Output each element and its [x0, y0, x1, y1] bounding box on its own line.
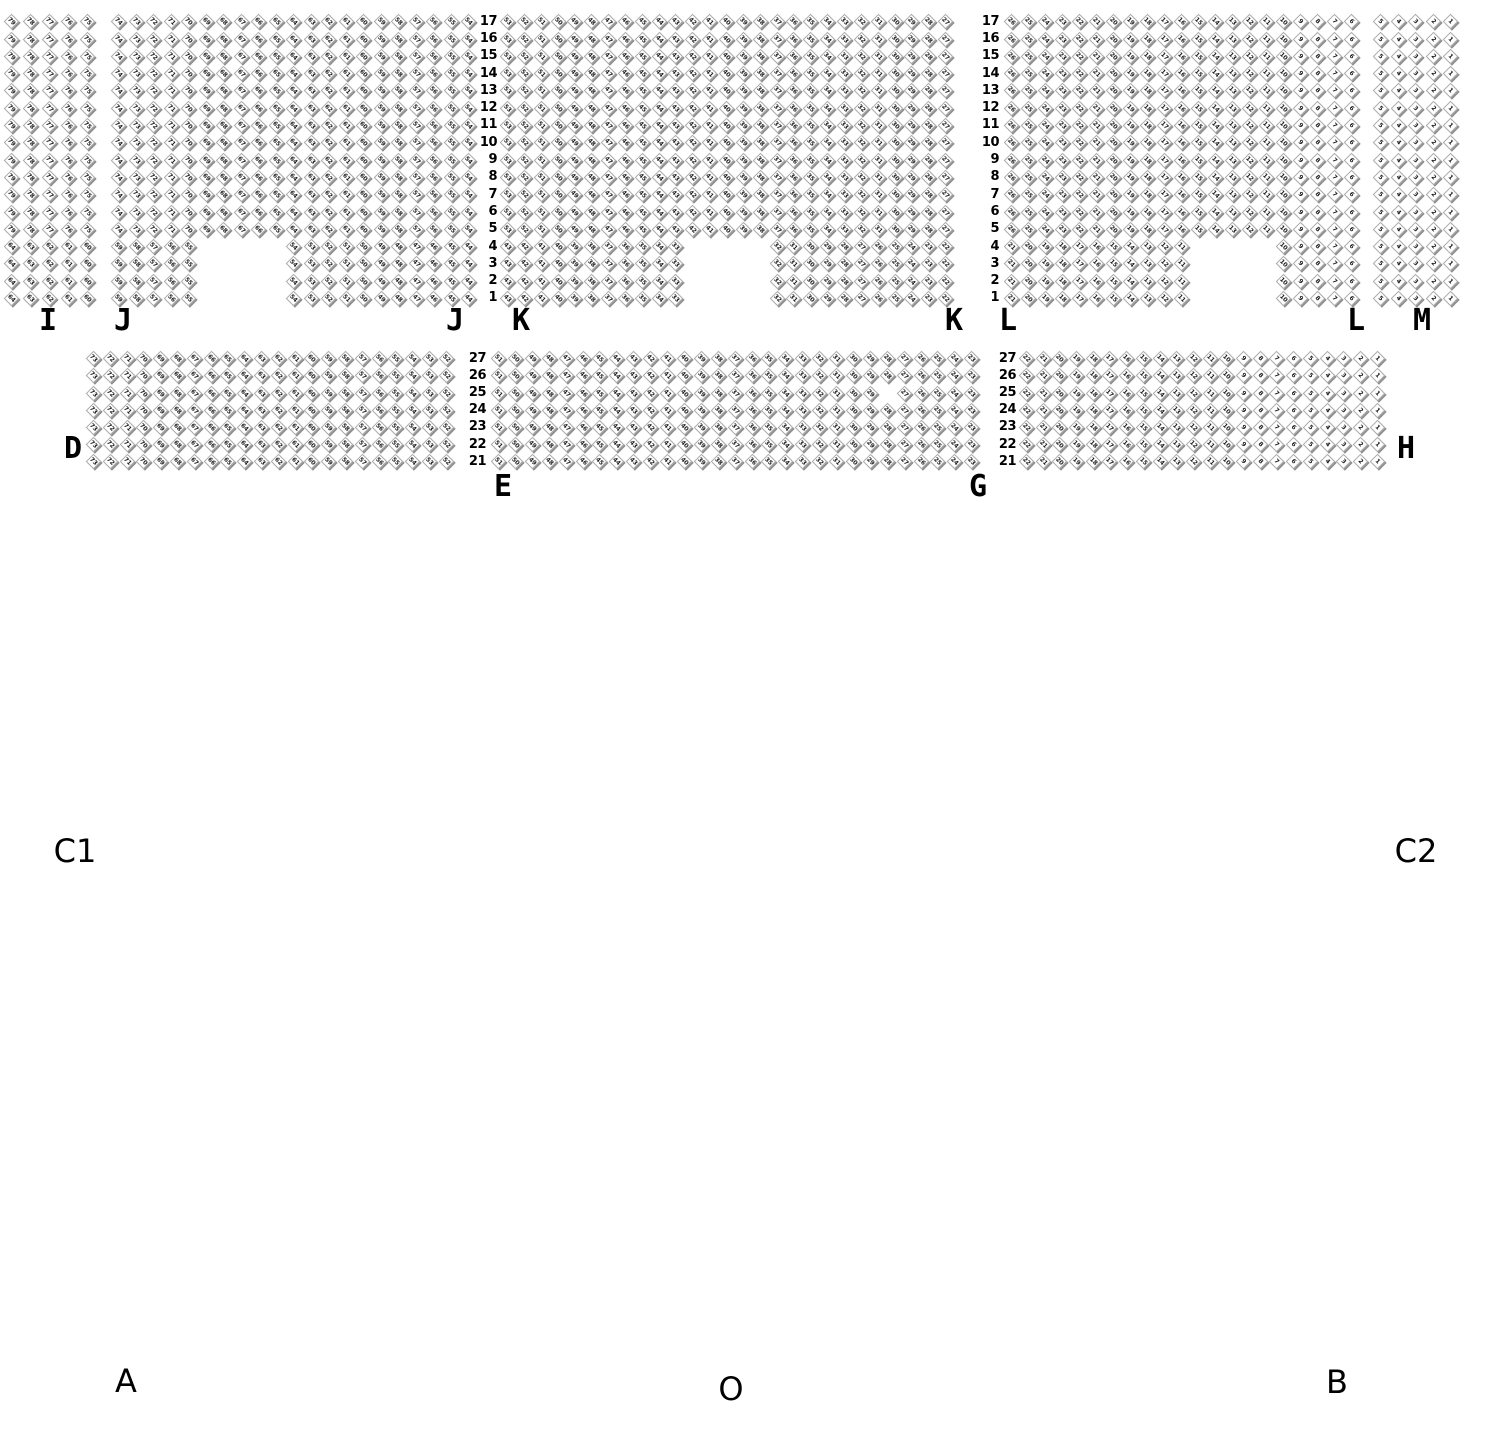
- seat-K-12-47[interactable]: 47: [601, 100, 617, 116]
- seat-J-14-56[interactable]: 56: [426, 66, 442, 82]
- seat-D-22-65[interactable]: 65: [220, 437, 236, 453]
- seat-L-3-10[interactable]: 10: [1276, 256, 1292, 272]
- seat-I-8-76[interactable]: 76: [61, 170, 77, 186]
- seat-L-15-23[interactable]: 23: [1055, 49, 1071, 65]
- seat-L-8-22[interactable]: 22: [1072, 170, 1088, 186]
- seat-K-17-41[interactable]: 41: [702, 14, 718, 30]
- seat-L-13-11[interactable]: 11: [1259, 83, 1275, 99]
- seat-I-7-78[interactable]: 78: [23, 187, 39, 203]
- seat-E-23-51[interactable]: 51: [491, 420, 507, 436]
- seat-K-14-49[interactable]: 49: [567, 66, 583, 82]
- seat-E-26-26[interactable]: 26: [913, 368, 929, 384]
- seat-K-2-37[interactable]: 37: [601, 273, 617, 289]
- seat-L-5-15[interactable]: 15: [1191, 222, 1207, 238]
- seat-J-11-74[interactable]: 74: [111, 118, 127, 134]
- seat-K-6-46[interactable]: 46: [618, 204, 634, 220]
- seat-K-11-50[interactable]: 50: [550, 118, 566, 134]
- seat-E-22-30[interactable]: 30: [846, 437, 862, 453]
- seat-J-1-48[interactable]: 48: [391, 291, 407, 307]
- seat-I-6-79[interactable]: 79: [4, 204, 20, 220]
- seat-L-7-11[interactable]: 11: [1259, 187, 1275, 203]
- seat-K-13-52[interactable]: 52: [517, 83, 533, 99]
- seat-L-15-16[interactable]: 16: [1174, 49, 1190, 65]
- seat-L-14-17[interactable]: 17: [1157, 66, 1173, 82]
- seat-L-7-12[interactable]: 12: [1242, 187, 1258, 203]
- seat-D-21-61[interactable]: 61: [287, 454, 303, 470]
- seat-L-9-8[interactable]: 8: [1310, 152, 1326, 168]
- seat-D-21-64[interactable]: 64: [237, 454, 253, 470]
- seat-E-26-30[interactable]: 30: [846, 368, 862, 384]
- seat-K-6-52[interactable]: 52: [517, 204, 533, 220]
- seat-E-25-40[interactable]: 40: [677, 385, 693, 401]
- seat-J-3-51[interactable]: 51: [339, 256, 355, 272]
- seat-E-22-48[interactable]: 48: [541, 437, 557, 453]
- seat-E-23-25[interactable]: 25: [930, 420, 946, 436]
- seat-E-22-35[interactable]: 35: [761, 437, 777, 453]
- seat-M-5-2[interactable]: 2: [1426, 222, 1442, 238]
- seat-D-22-59[interactable]: 59: [321, 437, 337, 453]
- seat-D-26-69[interactable]: 69: [153, 368, 169, 384]
- seat-J-14-63[interactable]: 63: [304, 66, 320, 82]
- seat-E-22-29[interactable]: 29: [863, 437, 879, 453]
- seat-D-25-70[interactable]: 70: [136, 385, 152, 401]
- seat-K-8-41[interactable]: 41: [702, 170, 718, 186]
- seat-L-2-12[interactable]: 12: [1157, 273, 1173, 289]
- seat-J-6-63[interactable]: 63: [304, 204, 320, 220]
- seat-E-24-31[interactable]: 31: [829, 402, 845, 418]
- seat-G-24-7[interactable]: 7: [1269, 402, 1285, 418]
- seat-I-12-76[interactable]: 76: [61, 100, 77, 116]
- seat-D-22-71[interactable]: 71: [119, 437, 135, 453]
- seat-L-17-11[interactable]: 11: [1259, 14, 1275, 30]
- seat-L-4-18[interactable]: 18: [1055, 239, 1071, 255]
- seat-D-23-66[interactable]: 66: [203, 420, 219, 436]
- seat-J-2-58[interactable]: 58: [129, 273, 145, 289]
- seat-J-11-73[interactable]: 73: [129, 118, 145, 134]
- seat-D-23-70[interactable]: 70: [136, 420, 152, 436]
- seat-K-6-33[interactable]: 33: [837, 204, 853, 220]
- seat-J-16-62[interactable]: 62: [321, 31, 337, 47]
- seat-L-4-14[interactable]: 14: [1123, 239, 1139, 255]
- seat-J-6-68[interactable]: 68: [216, 204, 232, 220]
- seat-E-26-42[interactable]: 42: [643, 368, 659, 384]
- seat-J-12-66[interactable]: 66: [251, 100, 267, 116]
- seat-K-11-30[interactable]: 30: [887, 118, 903, 134]
- seat-L-3-14[interactable]: 14: [1123, 256, 1139, 272]
- seat-L-8-9[interactable]: 9: [1293, 170, 1309, 186]
- seat-K-13-28[interactable]: 28: [921, 83, 937, 99]
- seat-E-21-24[interactable]: 24: [947, 454, 963, 470]
- seat-E-23-29[interactable]: 29: [863, 420, 879, 436]
- seat-K-11-28[interactable]: 28: [921, 118, 937, 134]
- seat-K-3-43[interactable]: 43: [500, 256, 516, 272]
- seat-E-22-45[interactable]: 45: [592, 437, 608, 453]
- seat-K-6-27[interactable]: 27: [938, 204, 954, 220]
- seat-D-24-70[interactable]: 70: [136, 402, 152, 418]
- seat-J-1-50[interactable]: 50: [356, 291, 372, 307]
- seat-M-6-1[interactable]: 1: [1443, 204, 1459, 220]
- seat-J-11-57[interactable]: 57: [409, 118, 425, 134]
- seat-L-15-26[interactable]: 26: [1004, 49, 1020, 65]
- seat-K-15-28[interactable]: 28: [921, 49, 937, 65]
- seat-J-16-73[interactable]: 73: [129, 31, 145, 47]
- seat-E-24-48[interactable]: 48: [541, 402, 557, 418]
- seat-G-23-14[interactable]: 14: [1152, 420, 1168, 436]
- seat-K-17-45[interactable]: 45: [634, 14, 650, 30]
- seat-E-26-50[interactable]: 50: [508, 368, 524, 384]
- seat-G-27-2[interactable]: 2: [1353, 351, 1369, 367]
- seat-G-26-3[interactable]: 3: [1336, 368, 1352, 384]
- seat-G-27-15[interactable]: 15: [1136, 351, 1152, 367]
- seat-G-25-19[interactable]: 19: [1069, 385, 1085, 401]
- seat-L-6-25[interactable]: 25: [1021, 204, 1037, 220]
- seat-E-21-30[interactable]: 30: [846, 454, 862, 470]
- seat-M-15-4[interactable]: 4: [1391, 49, 1407, 65]
- seat-J-14-70[interactable]: 70: [181, 66, 197, 82]
- seat-K-17-27[interactable]: 27: [938, 14, 954, 30]
- seat-L-9-17[interactable]: 17: [1157, 152, 1173, 168]
- seat-J-8-72[interactable]: 72: [146, 170, 162, 186]
- seat-L-17-21[interactable]: 21: [1089, 14, 1105, 30]
- seat-L-10-26[interactable]: 26: [1004, 135, 1020, 151]
- seat-K-15-41[interactable]: 41: [702, 49, 718, 65]
- seat-M-11-5[interactable]: 5: [1373, 118, 1389, 134]
- seat-I-3-61[interactable]: 61: [61, 256, 77, 272]
- seat-L-14-16[interactable]: 16: [1174, 66, 1190, 82]
- seat-J-16-56[interactable]: 56: [426, 31, 442, 47]
- seat-J-7-68[interactable]: 68: [216, 187, 232, 203]
- seat-K-1-29[interactable]: 29: [820, 291, 836, 307]
- seat-L-8-16[interactable]: 16: [1174, 170, 1190, 186]
- seat-I-5-79[interactable]: 79: [4, 222, 20, 238]
- seat-L-3-15[interactable]: 15: [1106, 256, 1122, 272]
- seat-L-5-25[interactable]: 25: [1021, 222, 1037, 238]
- seat-K-4-24[interactable]: 24: [904, 239, 920, 255]
- seat-G-24-11[interactable]: 11: [1202, 402, 1218, 418]
- seat-L-5-11[interactable]: 11: [1259, 222, 1275, 238]
- seat-J-15-62[interactable]: 62: [321, 49, 337, 65]
- seat-K-11-32[interactable]: 32: [854, 118, 870, 134]
- seat-L-8-10[interactable]: 10: [1276, 170, 1292, 186]
- seat-K-3-22[interactable]: 22: [938, 256, 954, 272]
- seat-L-9-15[interactable]: 15: [1191, 152, 1207, 168]
- seat-I-7-77[interactable]: 77: [42, 187, 58, 203]
- seat-M-15-2[interactable]: 2: [1426, 49, 1442, 65]
- seat-K-7-43[interactable]: 43: [668, 187, 684, 203]
- seat-K-9-51[interactable]: 51: [533, 152, 549, 168]
- seat-E-21-35[interactable]: 35: [761, 454, 777, 470]
- seat-K-3-33[interactable]: 33: [668, 256, 684, 272]
- seat-G-25-12[interactable]: 12: [1186, 385, 1202, 401]
- seat-J-3-55[interactable]: 55: [181, 256, 197, 272]
- seat-E-23-40[interactable]: 40: [677, 420, 693, 436]
- seat-E-25-25[interactable]: 25: [930, 385, 946, 401]
- seat-K-9-34[interactable]: 34: [820, 152, 836, 168]
- seat-G-22-17[interactable]: 17: [1102, 437, 1118, 453]
- seat-K-5-38[interactable]: 38: [752, 222, 768, 238]
- seat-K-6-48[interactable]: 48: [584, 204, 600, 220]
- seat-G-27-22[interactable]: 22: [1019, 351, 1035, 367]
- seat-K-9-47[interactable]: 47: [601, 152, 617, 168]
- seat-J-13-64[interactable]: 64: [286, 83, 302, 99]
- seat-K-8-34[interactable]: 34: [820, 170, 836, 186]
- seat-E-21-32[interactable]: 32: [812, 454, 828, 470]
- seat-K-1-31[interactable]: 31: [786, 291, 802, 307]
- seat-I-11-79[interactable]: 79: [4, 118, 20, 134]
- seat-D-21-55[interactable]: 55: [388, 454, 404, 470]
- seat-G-23-1[interactable]: 1: [1369, 420, 1385, 436]
- seat-K-9-30[interactable]: 30: [887, 152, 903, 168]
- seat-L-10-11[interactable]: 11: [1259, 135, 1275, 151]
- seat-M-13-1[interactable]: 1: [1443, 83, 1459, 99]
- seat-D-26-62[interactable]: 62: [270, 368, 286, 384]
- seat-K-16-27[interactable]: 27: [938, 31, 954, 47]
- seat-G-21-11[interactable]: 11: [1202, 454, 1218, 470]
- seat-K-14-34[interactable]: 34: [820, 66, 836, 82]
- seat-I-2-60[interactable]: 60: [80, 273, 96, 289]
- seat-J-15-63[interactable]: 63: [304, 49, 320, 65]
- seat-E-26-24[interactable]: 24: [947, 368, 963, 384]
- seat-K-12-35[interactable]: 35: [803, 100, 819, 116]
- seat-L-9-6[interactable]: 6: [1344, 152, 1360, 168]
- seat-K-4-43[interactable]: 43: [500, 239, 516, 255]
- seat-K-10-31[interactable]: 31: [870, 135, 886, 151]
- seat-K-6-39[interactable]: 39: [736, 204, 752, 220]
- seat-L-14-9[interactable]: 9: [1293, 66, 1309, 82]
- seat-J-12-69[interactable]: 69: [199, 100, 215, 116]
- seat-G-25-18[interactable]: 18: [1085, 385, 1101, 401]
- seat-K-6-30[interactable]: 30: [887, 204, 903, 220]
- seat-M-7-1[interactable]: 1: [1443, 187, 1459, 203]
- seat-J-14-72[interactable]: 72: [146, 66, 162, 82]
- seat-J-2-50[interactable]: 50: [356, 273, 372, 289]
- seat-L-6-9[interactable]: 9: [1293, 204, 1309, 220]
- seat-L-6-15[interactable]: 15: [1191, 204, 1207, 220]
- seat-G-23-22[interactable]: 22: [1019, 420, 1035, 436]
- seat-E-27-31[interactable]: 31: [829, 351, 845, 367]
- seat-J-7-69[interactable]: 69: [199, 187, 215, 203]
- seat-E-25-39[interactable]: 39: [694, 385, 710, 401]
- seat-K-14-44[interactable]: 44: [651, 66, 667, 82]
- seat-J-13-62[interactable]: 62: [321, 83, 337, 99]
- seat-J-11-70[interactable]: 70: [181, 118, 197, 134]
- seat-E-22-32[interactable]: 32: [812, 437, 828, 453]
- seat-K-2-32[interactable]: 32: [769, 273, 785, 289]
- seat-K-14-45[interactable]: 45: [634, 66, 650, 82]
- seat-E-22-39[interactable]: 39: [694, 437, 710, 453]
- seat-L-6-14[interactable]: 14: [1208, 204, 1224, 220]
- seat-J-5-68[interactable]: 68: [216, 222, 232, 238]
- seat-G-24-8[interactable]: 8: [1252, 402, 1268, 418]
- seat-K-15-52[interactable]: 52: [517, 49, 533, 65]
- seat-J-12-61[interactable]: 61: [339, 100, 355, 116]
- seat-L-13-16[interactable]: 16: [1174, 83, 1190, 99]
- seat-J-8-73[interactable]: 73: [129, 170, 145, 186]
- seat-J-2-49[interactable]: 49: [374, 273, 390, 289]
- seat-K-9-42[interactable]: 42: [685, 152, 701, 168]
- seat-J-4-52[interactable]: 52: [321, 239, 337, 255]
- seat-J-11-61[interactable]: 61: [339, 118, 355, 134]
- seat-K-13-33[interactable]: 33: [837, 83, 853, 99]
- seat-K-8-50[interactable]: 50: [550, 170, 566, 186]
- seat-L-1-18[interactable]: 18: [1055, 291, 1071, 307]
- seat-L-15-15[interactable]: 15: [1191, 49, 1207, 65]
- seat-D-27-67[interactable]: 67: [186, 351, 202, 367]
- seat-E-23-26[interactable]: 26: [913, 420, 929, 436]
- seat-E-25-24[interactable]: 24: [947, 385, 963, 401]
- seat-I-10-75[interactable]: 75: [80, 135, 96, 151]
- seat-J-1-46[interactable]: 46: [426, 291, 442, 307]
- seat-I-12-78[interactable]: 78: [23, 100, 39, 116]
- seat-K-12-42[interactable]: 42: [685, 100, 701, 116]
- seat-J-16-66[interactable]: 66: [251, 31, 267, 47]
- seat-G-22-15[interactable]: 15: [1136, 437, 1152, 453]
- seat-K-7-29[interactable]: 29: [904, 187, 920, 203]
- seat-E-27-30[interactable]: 30: [846, 351, 862, 367]
- seat-K-5-41[interactable]: 41: [702, 222, 718, 238]
- seat-L-5-13[interactable]: 13: [1225, 222, 1241, 238]
- seat-K-8-40[interactable]: 40: [719, 170, 735, 186]
- seat-K-10-46[interactable]: 46: [618, 135, 634, 151]
- seat-J-15-70[interactable]: 70: [181, 49, 197, 65]
- seat-M-9-1[interactable]: 1: [1443, 152, 1459, 168]
- seat-E-27-50[interactable]: 50: [508, 351, 524, 367]
- seat-K-15-48[interactable]: 48: [584, 49, 600, 65]
- seat-D-27-56[interactable]: 56: [371, 351, 387, 367]
- seat-D-22-57[interactable]: 57: [354, 437, 370, 453]
- seat-E-23-48[interactable]: 48: [541, 420, 557, 436]
- seat-G-21-3[interactable]: 3: [1336, 454, 1352, 470]
- seat-J-17-58[interactable]: 58: [391, 14, 407, 30]
- seat-G-26-20[interactable]: 20: [1052, 368, 1068, 384]
- seat-M-16-5[interactable]: 5: [1373, 31, 1389, 47]
- seat-J-16-63[interactable]: 63: [304, 31, 320, 47]
- seat-L-7-22[interactable]: 22: [1072, 187, 1088, 203]
- seat-M-3-5[interactable]: 5: [1373, 256, 1389, 272]
- seat-L-14-11[interactable]: 11: [1259, 66, 1275, 82]
- seat-K-7-40[interactable]: 40: [719, 187, 735, 203]
- seat-E-27-47[interactable]: 47: [558, 351, 574, 367]
- seat-K-15-42[interactable]: 42: [685, 49, 701, 65]
- seat-K-5-39[interactable]: 39: [736, 222, 752, 238]
- seat-G-23-21[interactable]: 21: [1035, 420, 1051, 436]
- seat-K-12-29[interactable]: 29: [904, 100, 920, 116]
- seat-J-12-73[interactable]: 73: [129, 100, 145, 116]
- seat-K-10-47[interactable]: 47: [601, 135, 617, 151]
- seat-D-25-73[interactable]: 73: [86, 385, 102, 401]
- seat-K-13-29[interactable]: 29: [904, 83, 920, 99]
- seat-J-6-62[interactable]: 62: [321, 204, 337, 220]
- seat-L-3-7[interactable]: 7: [1327, 256, 1343, 272]
- seat-G-27-14[interactable]: 14: [1152, 351, 1168, 367]
- seat-L-9-21[interactable]: 21: [1089, 152, 1105, 168]
- seat-G-22-3[interactable]: 3: [1336, 437, 1352, 453]
- seat-K-1-36[interactable]: 36: [618, 291, 634, 307]
- seat-G-26-6[interactable]: 6: [1286, 368, 1302, 384]
- seat-K-5-30[interactable]: 30: [887, 222, 903, 238]
- seat-K-8-52[interactable]: 52: [517, 170, 533, 186]
- seat-E-23-39[interactable]: 39: [694, 420, 710, 436]
- seat-E-24-35[interactable]: 35: [761, 402, 777, 418]
- seat-K-10-28[interactable]: 28: [921, 135, 937, 151]
- seat-D-23-64[interactable]: 64: [237, 420, 253, 436]
- seat-K-15-36[interactable]: 36: [786, 49, 802, 65]
- seat-K-13-39[interactable]: 39: [736, 83, 752, 99]
- seat-J-9-64[interactable]: 64: [286, 152, 302, 168]
- seat-G-27-3[interactable]: 3: [1336, 351, 1352, 367]
- seat-L-6-20[interactable]: 20: [1106, 204, 1122, 220]
- seat-K-11-27[interactable]: 27: [938, 118, 954, 134]
- seat-J-10-67[interactable]: 67: [234, 135, 250, 151]
- seat-J-4-58[interactable]: 58: [129, 239, 145, 255]
- seat-K-6-36[interactable]: 36: [786, 204, 802, 220]
- seat-J-15-73[interactable]: 73: [129, 49, 145, 65]
- seat-K-8-53[interactable]: 53: [500, 170, 516, 186]
- seat-J-14-68[interactable]: 68: [216, 66, 232, 82]
- seat-E-21-27[interactable]: 27: [896, 454, 912, 470]
- seat-L-16-7[interactable]: 7: [1327, 31, 1343, 47]
- seat-M-14-4[interactable]: 4: [1391, 66, 1407, 82]
- seat-K-9-45[interactable]: 45: [634, 152, 650, 168]
- seat-K-17-42[interactable]: 42: [685, 14, 701, 30]
- seat-J-4-59[interactable]: 59: [111, 239, 127, 255]
- seat-M-4-5[interactable]: 5: [1373, 239, 1389, 255]
- seat-K-16-28[interactable]: 28: [921, 31, 937, 47]
- seat-K-14-29[interactable]: 29: [904, 66, 920, 82]
- seat-L-3-6[interactable]: 6: [1344, 256, 1360, 272]
- seat-K-5-46[interactable]: 46: [618, 222, 634, 238]
- seat-D-24-64[interactable]: 64: [237, 402, 253, 418]
- seat-G-26-15[interactable]: 15: [1136, 368, 1152, 384]
- seat-J-3-59[interactable]: 59: [111, 256, 127, 272]
- seat-K-6-34[interactable]: 34: [820, 204, 836, 220]
- seat-I-8-78[interactable]: 78: [23, 170, 39, 186]
- seat-K-7-31[interactable]: 31: [870, 187, 886, 203]
- seat-L-2-7[interactable]: 7: [1327, 273, 1343, 289]
- seat-L-7-9[interactable]: 9: [1293, 187, 1309, 203]
- seat-E-27-49[interactable]: 49: [525, 351, 541, 367]
- seat-L-15-11[interactable]: 11: [1259, 49, 1275, 65]
- seat-J-8-56[interactable]: 56: [426, 170, 442, 186]
- seat-L-14-18[interactable]: 18: [1140, 66, 1156, 82]
- seat-L-16-19[interactable]: 19: [1123, 31, 1139, 47]
- seat-L-13-25[interactable]: 25: [1021, 83, 1037, 99]
- seat-J-9-67[interactable]: 67: [234, 152, 250, 168]
- seat-L-5-12[interactable]: 12: [1242, 222, 1258, 238]
- seat-J-12-71[interactable]: 71: [164, 100, 180, 116]
- seat-L-17-10[interactable]: 10: [1276, 14, 1292, 30]
- seat-E-21-48[interactable]: 48: [541, 454, 557, 470]
- seat-J-12-74[interactable]: 74: [111, 100, 127, 116]
- seat-E-23-50[interactable]: 50: [508, 420, 524, 436]
- seat-J-14-66[interactable]: 66: [251, 66, 267, 82]
- seat-I-2-62[interactable]: 62: [42, 273, 58, 289]
- seat-D-21-69[interactable]: 69: [153, 454, 169, 470]
- seat-D-25-55[interactable]: 55: [388, 385, 404, 401]
- seat-K-5-29[interactable]: 29: [904, 222, 920, 238]
- seat-L-4-20[interactable]: 20: [1021, 239, 1037, 255]
- seat-G-23-12[interactable]: 12: [1186, 420, 1202, 436]
- seat-K-6-37[interactable]: 37: [769, 204, 785, 220]
- seat-G-22-1[interactable]: 1: [1369, 437, 1385, 453]
- seat-K-15-44[interactable]: 44: [651, 49, 667, 65]
- seat-J-2-52[interactable]: 52: [321, 273, 337, 289]
- seat-J-5-61[interactable]: 61: [339, 222, 355, 238]
- seat-J-6-64[interactable]: 64: [286, 204, 302, 220]
- seat-J-3-53[interactable]: 53: [304, 256, 320, 272]
- seat-K-2-39[interactable]: 39: [567, 273, 583, 289]
- seat-L-14-8[interactable]: 8: [1310, 66, 1326, 82]
